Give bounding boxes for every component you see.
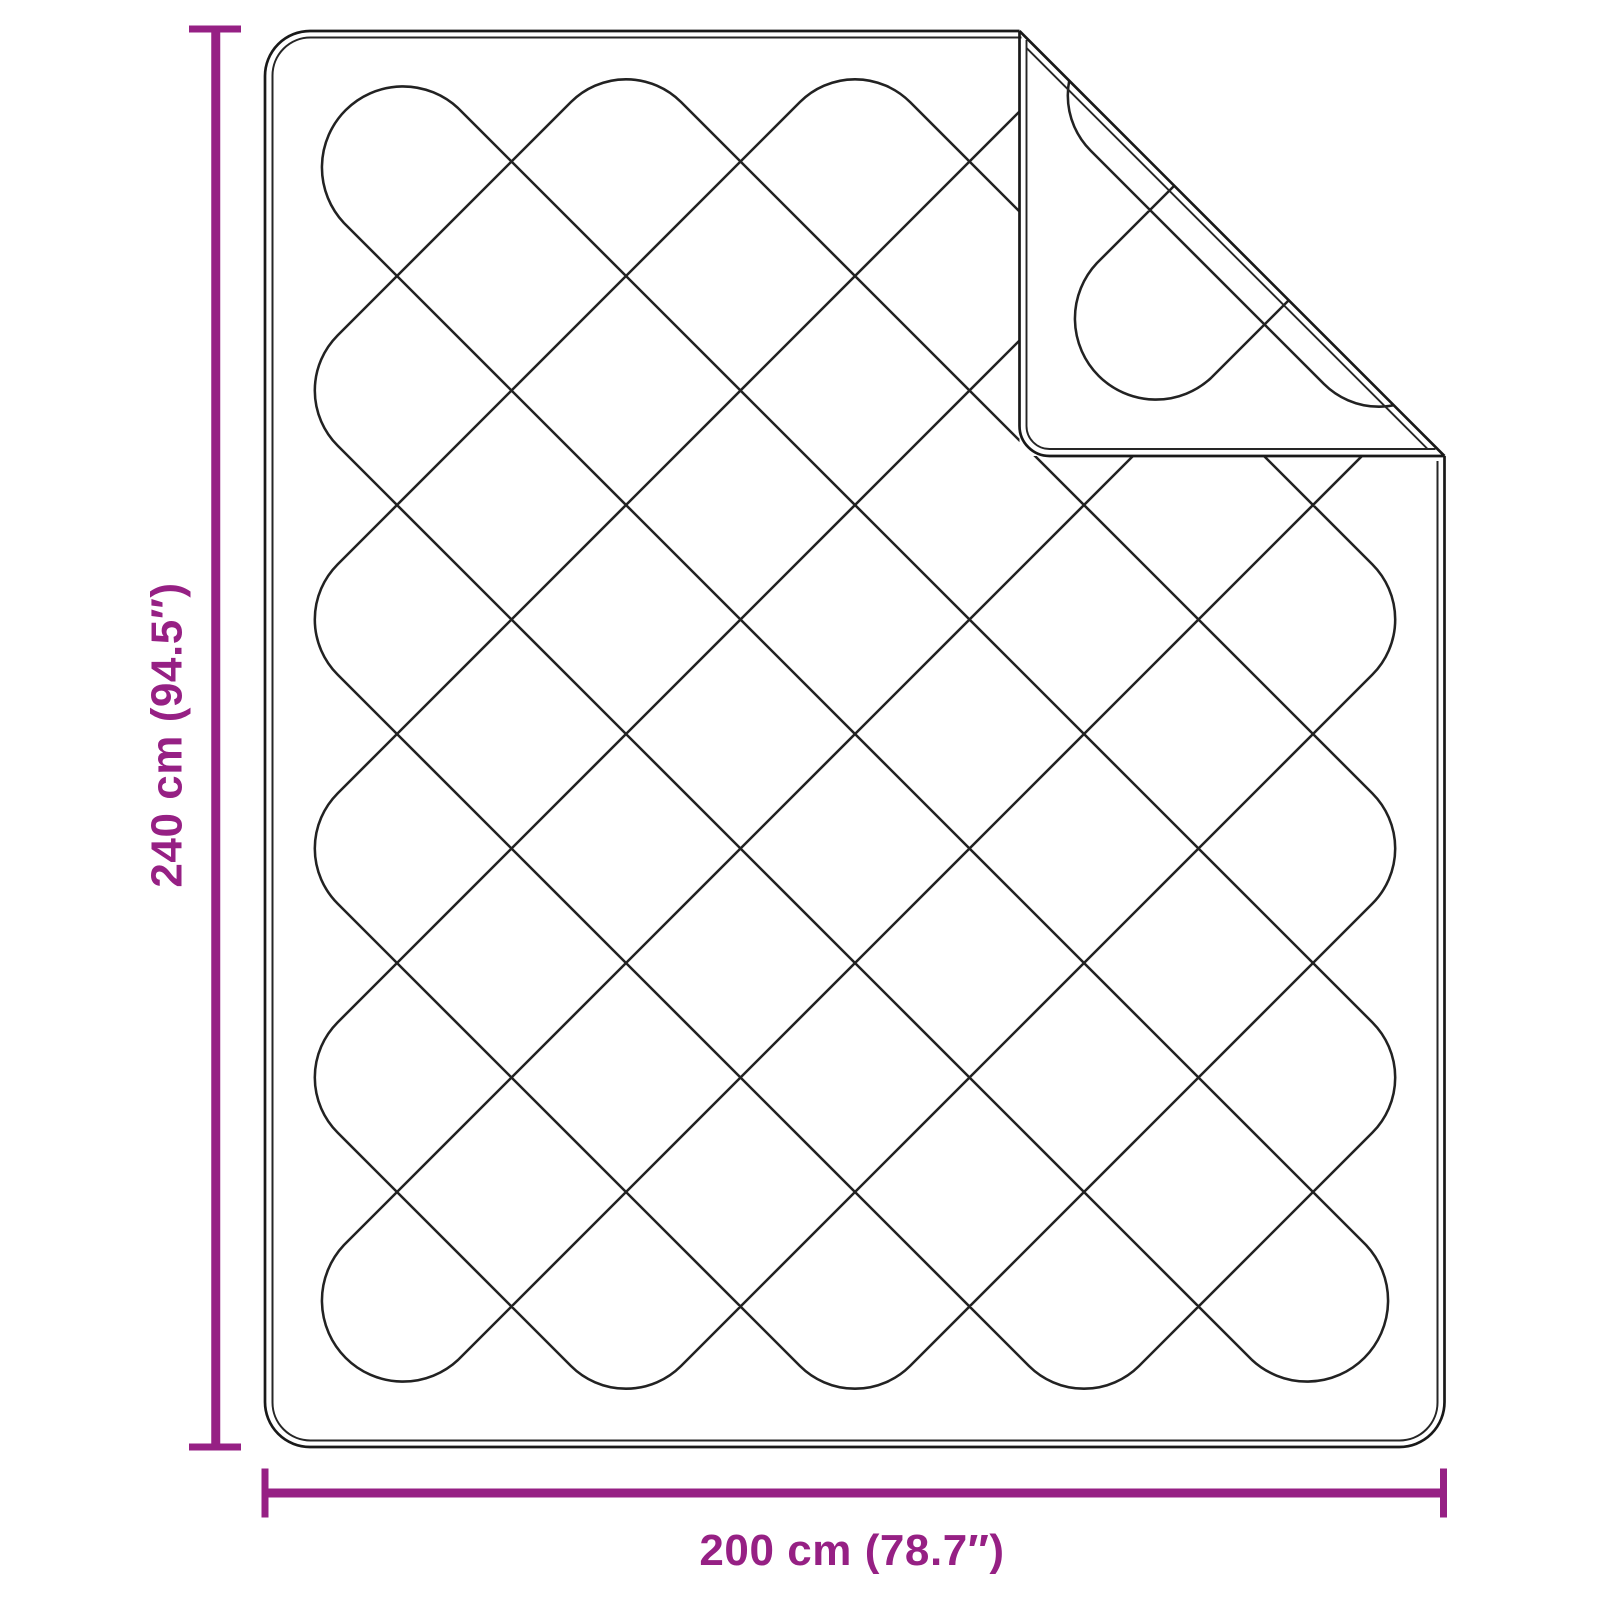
svg-text:240 cm (94.5″): 240 cm (94.5″) <box>142 582 191 887</box>
svg-text:200 cm (78.7″): 200 cm (78.7″) <box>699 1526 1004 1575</box>
